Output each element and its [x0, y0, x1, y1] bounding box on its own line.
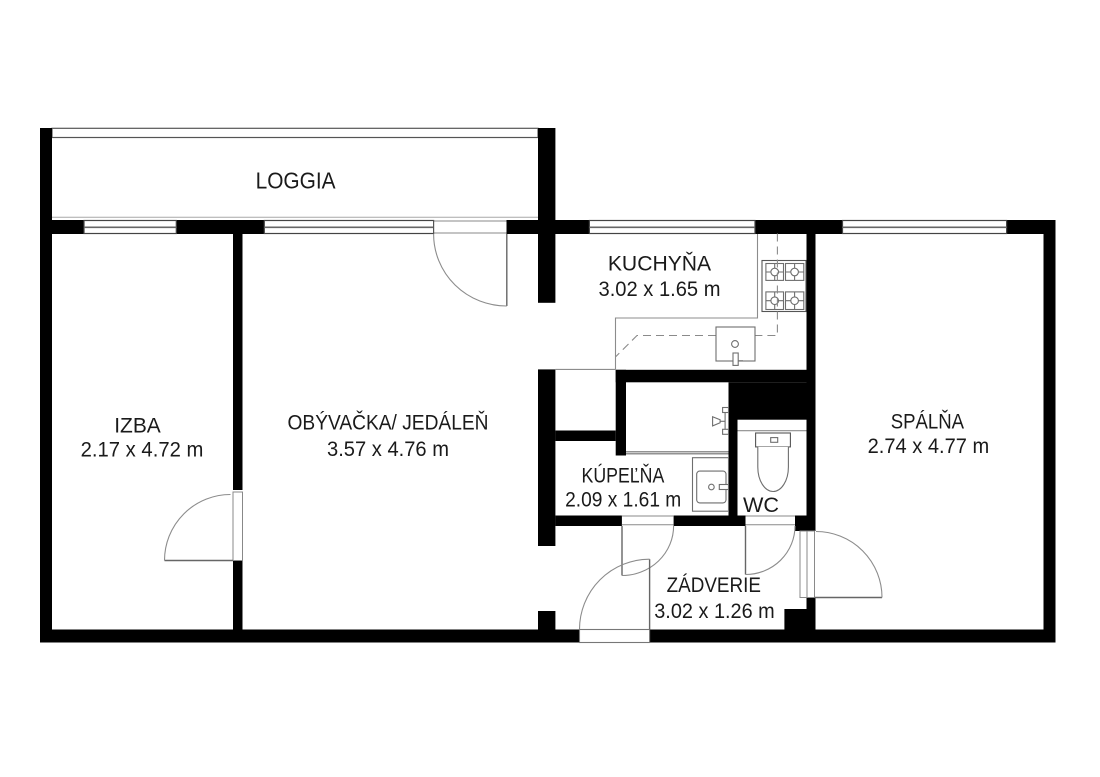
svg-text:2.09 x 1.61 m: 2.09 x 1.61 m — [565, 489, 681, 512]
svg-text:OBÝVAČKA/ JEDÁLEŇ: OBÝVAČKA/ JEDÁLEŇ — [288, 412, 489, 435]
svg-text:3.57 x 4.76 m: 3.57 x 4.76 m — [327, 438, 449, 461]
svg-text:SPÁLŇA: SPÁLŇA — [891, 411, 964, 434]
svg-text:KUCHYŇA: KUCHYŇA — [608, 253, 711, 276]
svg-text:KÚPEĽŇA: KÚPEĽŇA — [582, 464, 665, 487]
svg-text:WC: WC — [743, 494, 779, 517]
svg-text:3.02 x 1.65 m: 3.02 x 1.65 m — [599, 278, 721, 301]
svg-text:2.17 x 4.72 m: 2.17 x 4.72 m — [81, 438, 204, 461]
svg-text:3.02 x 1.26 m: 3.02 x 1.26 m — [654, 600, 775, 623]
svg-text:IZBA: IZBA — [114, 415, 161, 438]
svg-text:ZÁDVERIE: ZÁDVERIE — [667, 574, 761, 597]
svg-text:LOGGIA: LOGGIA — [256, 167, 337, 193]
svg-text:2.74 x 4.77 m: 2.74 x 4.77 m — [868, 435, 990, 458]
